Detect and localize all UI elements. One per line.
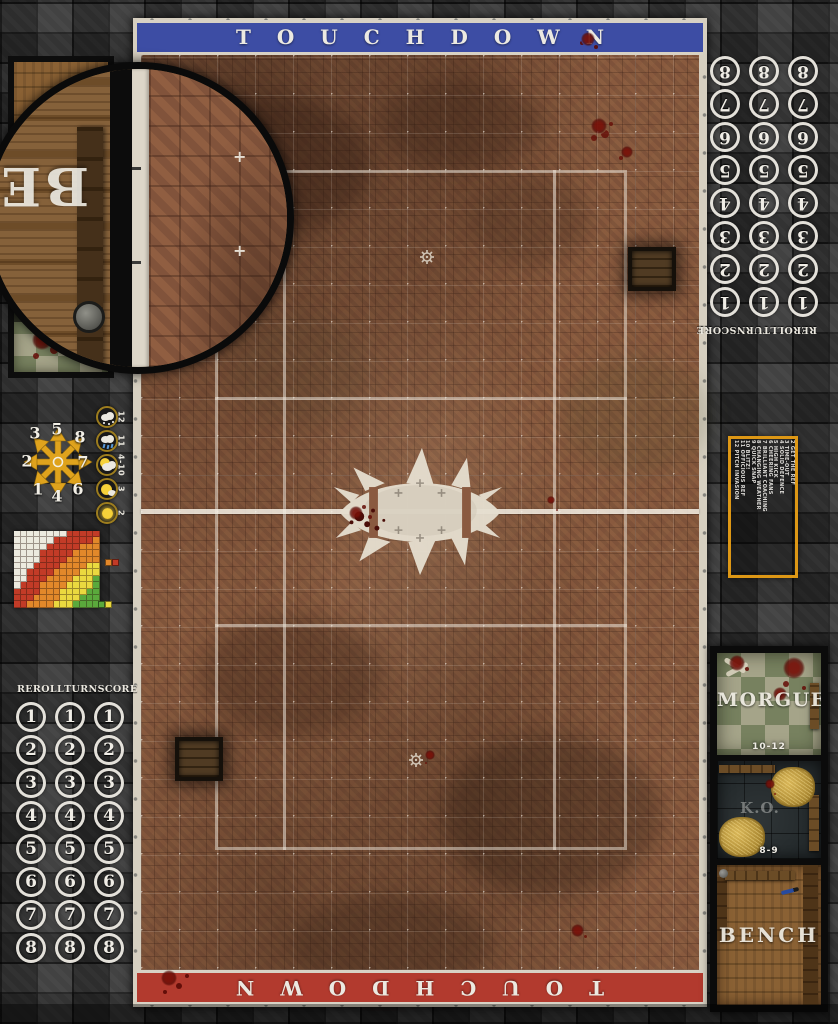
turn-track-cell-2[interactable]: 2 bbox=[16, 735, 46, 765]
ko-range: 8-9 bbox=[717, 846, 821, 856]
weather-value: 12 bbox=[117, 411, 126, 423]
ko-label: K.O. bbox=[717, 799, 821, 817]
turn-track-cell-4[interactable]: 4 bbox=[749, 188, 779, 218]
track-col-score: SCORE bbox=[697, 324, 737, 335]
turn-track-cell-5[interactable]: 5 bbox=[94, 834, 124, 864]
rain-icon bbox=[106, 435, 114, 443]
track-col-reroll: REROLL bbox=[770, 324, 817, 335]
turn-track-cell-3[interactable]: 3 bbox=[749, 221, 779, 251]
range-ruler-legend-bottom bbox=[98, 601, 112, 608]
magnified-dugout-frame bbox=[110, 69, 132, 367]
blood-splatter bbox=[161, 970, 177, 986]
turn-track-cell-1[interactable]: 1 bbox=[55, 702, 85, 732]
weather-perfect-conditions bbox=[96, 454, 118, 476]
blood-splatter bbox=[765, 779, 775, 789]
turn-track-cell-2[interactable]: 2 bbox=[788, 254, 818, 284]
range-ruler-legend-cell bbox=[105, 559, 112, 566]
overcast-icon bbox=[108, 461, 116, 469]
scatter-number: 2 bbox=[21, 452, 32, 471]
turn-track-header: REROLL TURN SCORE bbox=[710, 324, 818, 335]
scatter-number: 5 bbox=[51, 420, 62, 439]
turn-track-cell-3[interactable]: 3 bbox=[788, 221, 818, 251]
trapdoor-hatch bbox=[628, 247, 676, 291]
range-ruler-legend-cell bbox=[98, 601, 105, 608]
touchdown-banner-top-label: TOUCHDOWN bbox=[236, 25, 630, 49]
turn-track-cell-3[interactable]: 3 bbox=[94, 768, 124, 798]
floor-shadow bbox=[0, 1004, 838, 1024]
morgue-range: 10-12 bbox=[717, 742, 821, 752]
blood-splatter bbox=[783, 657, 805, 679]
magnified-rivet bbox=[73, 301, 105, 333]
magnified-sideline bbox=[132, 69, 149, 367]
turn-track-cell-7[interactable]: 7 bbox=[94, 900, 124, 930]
weather-blizzard bbox=[96, 406, 118, 428]
range-ruler-cell bbox=[47, 601, 54, 607]
weather-sweltering-heat bbox=[96, 502, 118, 524]
range-ruler-cell bbox=[67, 601, 74, 607]
weather-very-sunny bbox=[96, 478, 118, 500]
magnified-grid-cross: + bbox=[233, 147, 246, 166]
turn-track-cell-2[interactable]: 2 bbox=[749, 254, 779, 284]
kickoff-entry: 4 SOLID DEFENCE bbox=[777, 440, 783, 574]
turn-track-cell-4[interactable]: 4 bbox=[710, 188, 740, 218]
court-service-line-bottom bbox=[215, 624, 627, 627]
magnified-tick bbox=[132, 167, 141, 170]
rain-dash bbox=[107, 445, 110, 449]
turn-track-cell-8[interactable]: 8 bbox=[16, 933, 46, 963]
turn-track-cell-3[interactable]: 3 bbox=[16, 768, 46, 798]
cog-icon bbox=[419, 249, 435, 265]
turn-track-cell-5[interactable]: 5 bbox=[788, 155, 818, 185]
court-service-line-top bbox=[215, 397, 627, 400]
bench-box: BENCH bbox=[717, 865, 821, 1005]
range-ruler-legend-cell bbox=[112, 559, 119, 566]
rain-dash bbox=[103, 444, 106, 448]
magnified-grid-cross: + bbox=[233, 241, 246, 260]
ko-box: K.O. 8-9 bbox=[717, 761, 821, 859]
scatter-number: 8 bbox=[74, 428, 85, 447]
knife bbox=[781, 887, 799, 895]
blood-splatter bbox=[591, 118, 607, 134]
turn-track-header: REROLL TURN SCORE bbox=[16, 684, 124, 695]
turn-track-cell-8[interactable]: 8 bbox=[788, 56, 818, 86]
turn-track-cell-7[interactable]: 7 bbox=[16, 900, 46, 930]
blood-splatter bbox=[571, 924, 584, 937]
range-ruler-cell bbox=[34, 601, 41, 607]
weather-pouring-rain bbox=[96, 430, 118, 452]
range-ruler-cell bbox=[60, 601, 67, 607]
turn-track-cell-6[interactable]: 6 bbox=[749, 122, 779, 152]
sunny-icon bbox=[108, 490, 116, 496]
turn-track-grid: 111222333444555666777888 bbox=[16, 702, 124, 963]
scatter-number: 6 bbox=[72, 480, 83, 499]
kickoff-table: 2 GET THE REF3 TIME-OUT4 SOLID DEFENCE5 … bbox=[728, 436, 798, 578]
blizzard-icon bbox=[106, 412, 114, 420]
touchdown-banner-bottom-label: TOUCHDOWN bbox=[210, 976, 604, 1000]
turn-track-cell-2[interactable]: 2 bbox=[710, 254, 740, 284]
blood-splatter bbox=[425, 750, 435, 760]
turn-track-right: REROLL TURN SCORE 1112223334445556667778… bbox=[710, 56, 818, 335]
range-ruler-cell bbox=[87, 601, 94, 607]
sideline-rivets-right bbox=[702, 58, 707, 967]
magnified-tick bbox=[132, 261, 141, 264]
wood-plank bbox=[725, 871, 795, 880]
turn-track-cell-8[interactable]: 8 bbox=[749, 56, 779, 86]
kickoff-table-entries: 2 GET THE REF3 TIME-OUT4 SOLID DEFENCE5 … bbox=[732, 440, 794, 574]
wood-plank bbox=[719, 765, 775, 773]
kickoff-entry: 7 BRILLIANT COACHING bbox=[760, 440, 766, 574]
turn-track-cell-5[interactable]: 5 bbox=[16, 834, 46, 864]
kickoff-entry: 12 PITCH INVASION bbox=[732, 440, 738, 574]
range-ruler-cell bbox=[27, 601, 34, 607]
range-ruler-legend-top bbox=[105, 559, 119, 566]
turn-track-grid: 111222333444555666777888 bbox=[710, 56, 818, 317]
magnified-pitch-bricks: + + bbox=[149, 69, 287, 367]
morgue-label: MORGUE bbox=[717, 689, 821, 711]
turn-track-cell-4[interactable]: 4 bbox=[55, 801, 85, 831]
turn-track-cell-1[interactable]: 1 bbox=[749, 287, 779, 317]
rain-dash bbox=[111, 444, 114, 448]
track-col-turn: TURN bbox=[736, 324, 770, 335]
turn-track-cell-8[interactable]: 8 bbox=[55, 933, 85, 963]
snow-dot bbox=[103, 422, 105, 424]
kickoff-entry: 2 GET THE REF bbox=[788, 440, 794, 574]
track-col-score: SCORE bbox=[98, 684, 138, 695]
range-ruler-cell bbox=[21, 601, 28, 607]
turn-track-cell-1[interactable]: 1 bbox=[16, 702, 46, 732]
turn-track-cell-5[interactable]: 5 bbox=[710, 155, 740, 185]
track-col-reroll: REROLL bbox=[17, 684, 64, 695]
magnified-bench-letters: BE bbox=[0, 155, 89, 216]
blood-splatter bbox=[581, 32, 595, 46]
turn-track-cell-7[interactable]: 7 bbox=[788, 89, 818, 119]
snow-dot bbox=[108, 423, 110, 425]
magnifier-inset: BE + + bbox=[0, 62, 294, 374]
turn-track-cell-3[interactable]: 3 bbox=[55, 768, 85, 798]
bench-label: BENCH bbox=[717, 923, 821, 947]
blood-splatter bbox=[729, 655, 745, 671]
turn-track-left: REROLL TURN SCORE 1112223334445556667778… bbox=[16, 684, 124, 963]
range-ruler-cell bbox=[73, 601, 80, 607]
turn-track-cell-2[interactable]: 2 bbox=[55, 735, 85, 765]
turn-track-cell-6[interactable]: 6 bbox=[55, 867, 85, 897]
turn-track-cell-6[interactable]: 6 bbox=[788, 122, 818, 152]
turn-track-cell-3[interactable]: 3 bbox=[710, 221, 740, 251]
weather-value: 2 bbox=[117, 510, 126, 516]
scatter-number: 1 bbox=[32, 480, 43, 499]
turn-track-cell-5[interactable]: 5 bbox=[749, 155, 779, 185]
weather-value: 4-10 bbox=[117, 454, 126, 476]
scatter-number: 3 bbox=[29, 424, 40, 443]
track-col-turn: TURN bbox=[64, 684, 98, 695]
blood-splatter bbox=[349, 506, 363, 520]
blood-splatter bbox=[621, 146, 633, 158]
turn-track-cell-8[interactable]: 8 bbox=[94, 933, 124, 963]
turn-track-cell-6[interactable]: 6 bbox=[94, 867, 124, 897]
range-ruler-cell bbox=[80, 601, 87, 607]
weather-value: 11 bbox=[117, 435, 126, 447]
turn-track-cell-2[interactable]: 2 bbox=[94, 735, 124, 765]
blood-splatter bbox=[547, 496, 555, 504]
cog-icon bbox=[408, 752, 424, 768]
turn-track-cell-8[interactable]: 8 bbox=[710, 56, 740, 86]
nail-head bbox=[719, 869, 728, 878]
touchdown-banner-top: TOUCHDOWN bbox=[137, 20, 703, 55]
turn-track-cell-1[interactable]: 1 bbox=[710, 287, 740, 317]
turn-track-cell-7[interactable]: 7 bbox=[710, 89, 740, 119]
weather-value: 3 bbox=[117, 486, 126, 492]
turn-track-cell-6[interactable]: 6 bbox=[16, 867, 46, 897]
sweltering-icon bbox=[102, 508, 113, 519]
scatter-number: 7 bbox=[77, 453, 88, 472]
range-ruler bbox=[14, 531, 100, 608]
scatter-number: 4 bbox=[51, 487, 62, 506]
range-ruler-cell bbox=[40, 601, 47, 607]
turn-track-cell-7[interactable]: 7 bbox=[749, 89, 779, 119]
range-ruler-legend-cell bbox=[105, 601, 112, 608]
turn-track-cell-6[interactable]: 6 bbox=[710, 122, 740, 152]
touchdown-banner-bottom: TOUCHDOWN bbox=[137, 970, 703, 1005]
turn-track-cell-7[interactable]: 7 bbox=[55, 900, 85, 930]
range-ruler-cell bbox=[14, 601, 21, 607]
morgue-box: MORGUE 10-12 bbox=[717, 653, 821, 755]
blood-bowl-game-mat: TOUCHDOWN bbox=[0, 0, 838, 1024]
turn-track-cell-4[interactable]: 4 bbox=[94, 801, 124, 831]
trapdoor-hatch bbox=[175, 737, 223, 781]
turn-track-cell-4[interactable]: 4 bbox=[16, 801, 46, 831]
range-ruler-cell bbox=[54, 601, 61, 607]
turn-track-cell-1[interactable]: 1 bbox=[94, 702, 124, 732]
turn-track-cell-4[interactable]: 4 bbox=[788, 188, 818, 218]
dugout-bottom-right: MORGUE 10-12 K.O. 8-9 BENCH bbox=[710, 646, 828, 1012]
turn-track-cell-5[interactable]: 5 bbox=[55, 834, 85, 864]
snow-dot bbox=[112, 421, 114, 423]
turn-track-cell-1[interactable]: 1 bbox=[788, 287, 818, 317]
